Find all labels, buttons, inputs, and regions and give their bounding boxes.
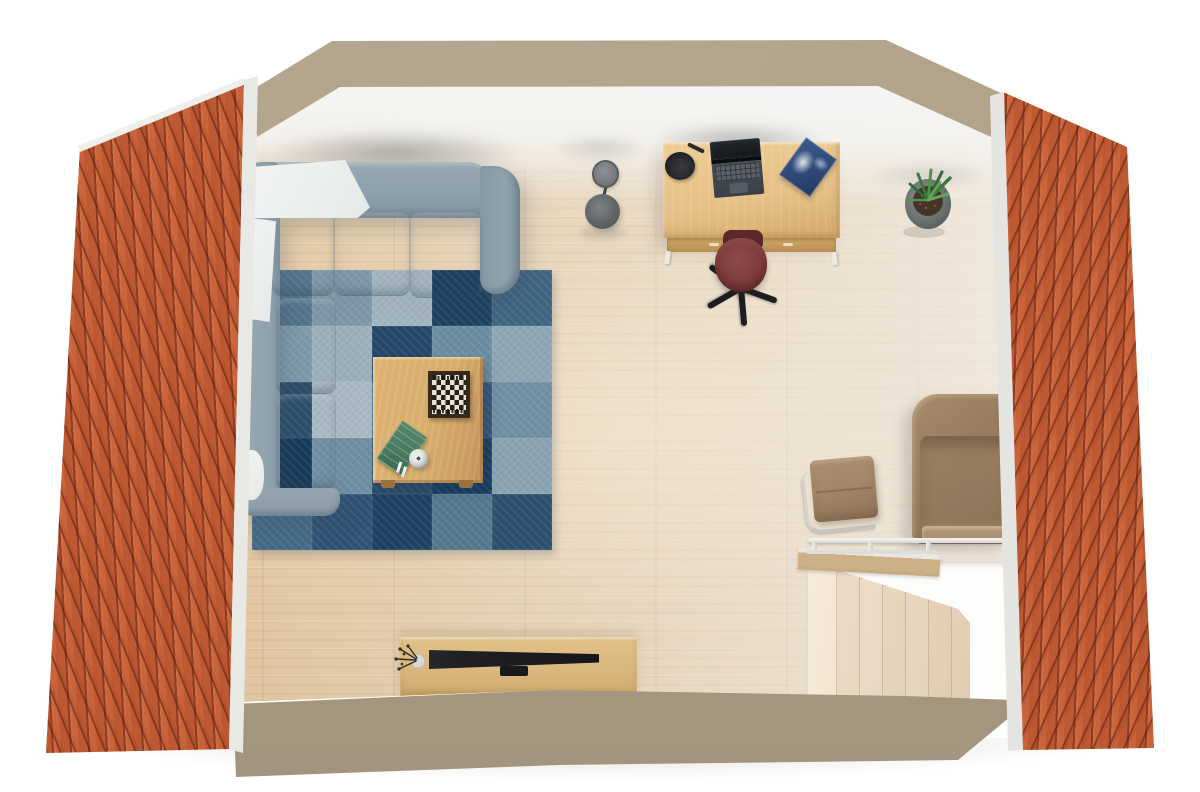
twig-vase-plant	[390, 643, 434, 677]
stair-railing	[806, 534, 1014, 560]
chair-pad	[809, 455, 878, 522]
stair-step	[905, 590, 929, 703]
laptop	[710, 138, 765, 198]
sofa-armrest-right	[480, 166, 520, 294]
floorplan-render	[0, 0, 1200, 792]
armchair	[912, 394, 1012, 544]
sofa-cushion	[334, 212, 410, 296]
potted-plant	[898, 168, 958, 240]
chessboard-squares	[432, 375, 466, 414]
laptop-keyboard	[712, 160, 765, 198]
lamp-shade	[592, 160, 619, 188]
laptop-keys	[715, 162, 760, 182]
railing-bar	[808, 538, 1014, 543]
laptop-touchpad	[729, 182, 748, 194]
stair-step	[882, 583, 906, 703]
tv-console	[400, 637, 637, 697]
stair-step	[836, 569, 860, 703]
sofa-cushion	[272, 212, 334, 296]
chessboard	[428, 371, 470, 418]
sofa-cushion	[276, 298, 336, 394]
office-chair	[697, 228, 787, 338]
desk-lamp	[655, 142, 707, 184]
cantilever-chair	[804, 456, 884, 534]
bowl	[409, 449, 428, 468]
staircase	[808, 567, 974, 703]
desk-lamp-arm	[687, 142, 705, 153]
sofa-cushion	[276, 394, 336, 490]
stair-step	[951, 604, 975, 703]
stair-step	[859, 576, 883, 703]
stair-opening	[806, 561, 1015, 703]
chair-seat	[715, 238, 767, 292]
table-leg	[459, 480, 473, 488]
lamp-base	[585, 194, 620, 229]
railing-post	[812, 541, 817, 551]
stair-step	[928, 597, 952, 703]
tv-stand-foot	[500, 666, 528, 676]
desk-lamp-head	[665, 152, 695, 180]
coffee-table	[373, 357, 483, 483]
bookmark-ribbon	[395, 461, 411, 478]
armchair-seat	[920, 436, 1010, 532]
table-leg	[381, 480, 395, 488]
sofa-cushion	[410, 212, 482, 298]
railing-post	[868, 541, 873, 551]
floor-lamp	[580, 158, 628, 244]
railing-post	[926, 541, 931, 551]
